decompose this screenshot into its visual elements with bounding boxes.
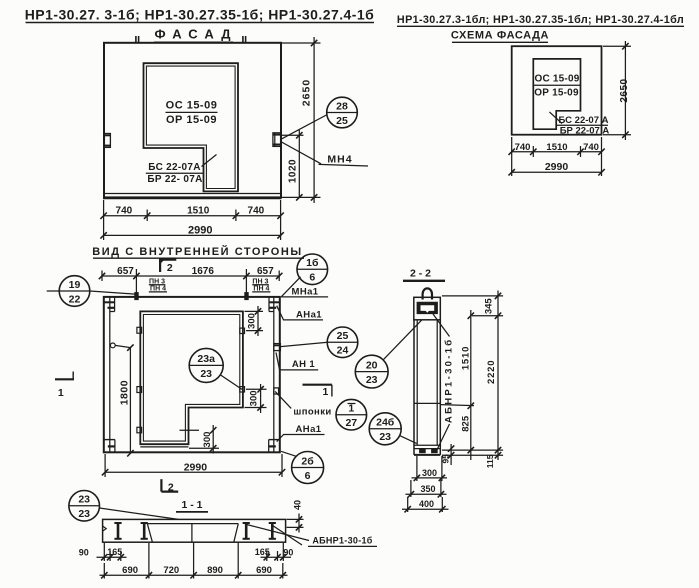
svg-text:АН 1: АН 1 <box>292 359 316 370</box>
svg-text:19: 19 <box>69 279 81 291</box>
svg-text:90: 90 <box>79 547 89 557</box>
svg-text:115: 115 <box>485 454 495 468</box>
svg-text:2990: 2990 <box>184 461 208 473</box>
svg-text:ОС 15-09: ОС 15-09 <box>535 74 580 85</box>
svg-text:1676: 1676 <box>192 266 215 277</box>
svg-text:27: 27 <box>345 417 357 429</box>
svg-text:1б: 1б <box>306 257 319 269</box>
svg-text:690: 690 <box>122 565 138 576</box>
svg-text:40: 40 <box>293 500 303 510</box>
svg-text:НР1-30.27. 3-1б; НР1-30.27.35: НР1-30.27. 3-1б; НР1-30.27.35-1б; НР1-30… <box>25 7 375 23</box>
svg-text:23: 23 <box>78 494 90 506</box>
svg-text:1: 1 <box>348 403 354 415</box>
svg-text:БР 22- 07А: БР 22- 07А <box>147 174 202 185</box>
svg-text:АНа1: АНа1 <box>296 424 322 435</box>
svg-text:1800: 1800 <box>118 380 130 405</box>
svg-text:720: 720 <box>163 565 179 576</box>
svg-text:300: 300 <box>248 390 259 406</box>
svg-text:2990: 2990 <box>545 161 569 173</box>
svg-text:23: 23 <box>366 374 378 386</box>
svg-text:24б: 24б <box>376 417 395 429</box>
svg-text:20: 20 <box>366 359 378 371</box>
svg-text:1020: 1020 <box>287 159 298 183</box>
svg-text:АНа1: АНа1 <box>296 309 322 320</box>
svg-text:740: 740 <box>583 142 599 153</box>
svg-text:2 - 2: 2 - 2 <box>410 268 431 280</box>
svg-text:1510: 1510 <box>187 206 210 217</box>
svg-text:БС 22-07 А: БС 22-07 А <box>558 115 608 126</box>
svg-text:24: 24 <box>337 345 349 357</box>
svg-text:6: 6 <box>309 272 315 284</box>
svg-text:345: 345 <box>483 298 494 315</box>
svg-text:165: 165 <box>107 547 122 557</box>
svg-text:ОС 15-09: ОС 15-09 <box>166 100 218 112</box>
svg-text:400: 400 <box>419 499 434 509</box>
svg-text:28: 28 <box>336 100 348 112</box>
svg-text:6: 6 <box>305 470 311 482</box>
svg-text:740: 740 <box>515 142 531 153</box>
svg-text:300: 300 <box>202 432 213 448</box>
svg-text:МНа1: МНа1 <box>292 286 319 297</box>
svg-text:23: 23 <box>379 431 391 443</box>
svg-text:2б: 2б <box>301 455 314 467</box>
svg-text:165: 165 <box>255 547 270 557</box>
svg-text:2: 2 <box>168 481 174 493</box>
svg-text:740: 740 <box>248 206 265 217</box>
svg-text:1510: 1510 <box>461 346 472 370</box>
svg-text:2650: 2650 <box>619 78 630 102</box>
svg-text:23: 23 <box>200 368 212 380</box>
svg-text:740: 740 <box>116 206 133 217</box>
svg-text:ВИД С ВНУТРЕННЕЙ СТОРОНЫ: ВИД С ВНУТРЕННЕЙ СТОРОНЫ <box>92 245 302 258</box>
svg-text:2650: 2650 <box>301 79 313 106</box>
svg-text:1510: 1510 <box>546 142 567 153</box>
svg-text:657: 657 <box>117 266 134 277</box>
svg-text:2: 2 <box>167 262 173 274</box>
svg-text:25: 25 <box>337 330 349 342</box>
svg-text:300: 300 <box>247 313 258 329</box>
svg-text:2990: 2990 <box>188 224 212 236</box>
svg-text:90: 90 <box>283 547 293 557</box>
svg-text:23а: 23а <box>197 353 215 365</box>
svg-text:ОР 15-09: ОР 15-09 <box>166 114 217 126</box>
svg-text:22: 22 <box>69 293 81 305</box>
svg-text:657: 657 <box>257 266 274 277</box>
svg-text:890: 890 <box>207 565 223 576</box>
svg-text:1: 1 <box>322 386 328 398</box>
svg-text:825: 825 <box>461 415 472 432</box>
svg-text:300: 300 <box>422 468 437 478</box>
svg-text:АБНР1-30-1б: АБНР1-30-1б <box>312 536 372 546</box>
svg-text:НР1-30.27.3-1бл; НР1-30.27.35-: НР1-30.27.3-1бл; НР1-30.27.35-1бл; НР1-3… <box>397 14 684 26</box>
svg-text:1 - 1: 1 - 1 <box>181 499 202 511</box>
svg-text:1: 1 <box>58 387 64 399</box>
svg-text:ОР 15-09: ОР 15-09 <box>534 87 579 98</box>
svg-text:23: 23 <box>78 508 90 520</box>
svg-text:АБНР1-30-1б: АБНР1-30-1б <box>443 338 454 424</box>
svg-text:690: 690 <box>256 565 272 576</box>
svg-text:СХЕМА ФАСАДА: СХЕМА ФАСАДА <box>451 30 549 42</box>
svg-text:БР 22-07 А: БР 22-07 А <box>560 126 610 137</box>
svg-text:МН4: МН4 <box>327 153 352 165</box>
svg-text:шпонки: шпонки <box>293 406 331 417</box>
svg-text:БС 22-07А: БС 22-07А <box>148 162 201 173</box>
svg-text:ФАСАД: ФАСАД <box>154 27 237 42</box>
svg-text:25: 25 <box>336 115 348 127</box>
svg-text:350: 350 <box>420 484 435 494</box>
svg-text:2220: 2220 <box>486 360 497 384</box>
